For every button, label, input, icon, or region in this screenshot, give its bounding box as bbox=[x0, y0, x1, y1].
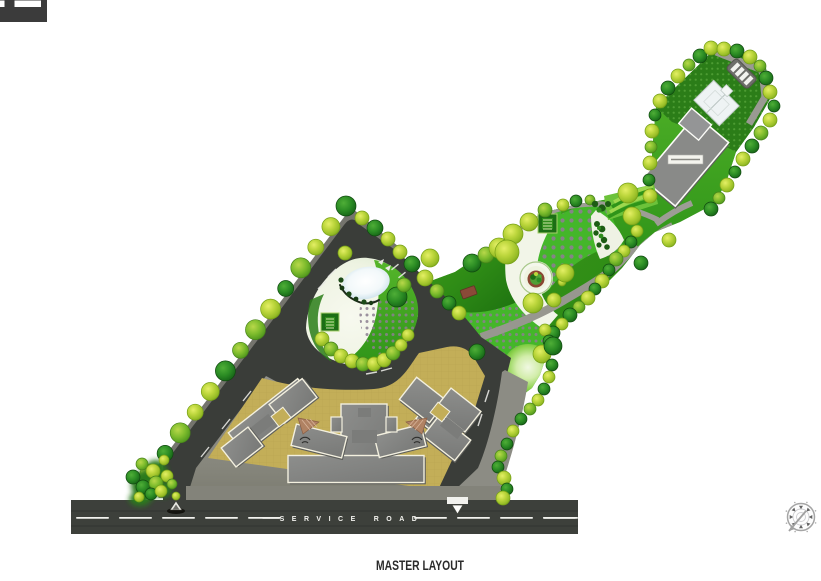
svg-text:MASTER LAYOUT: MASTER LAYOUT bbox=[376, 557, 464, 573]
svg-text:SERVICE ROAD: SERVICE ROAD bbox=[280, 516, 425, 523]
